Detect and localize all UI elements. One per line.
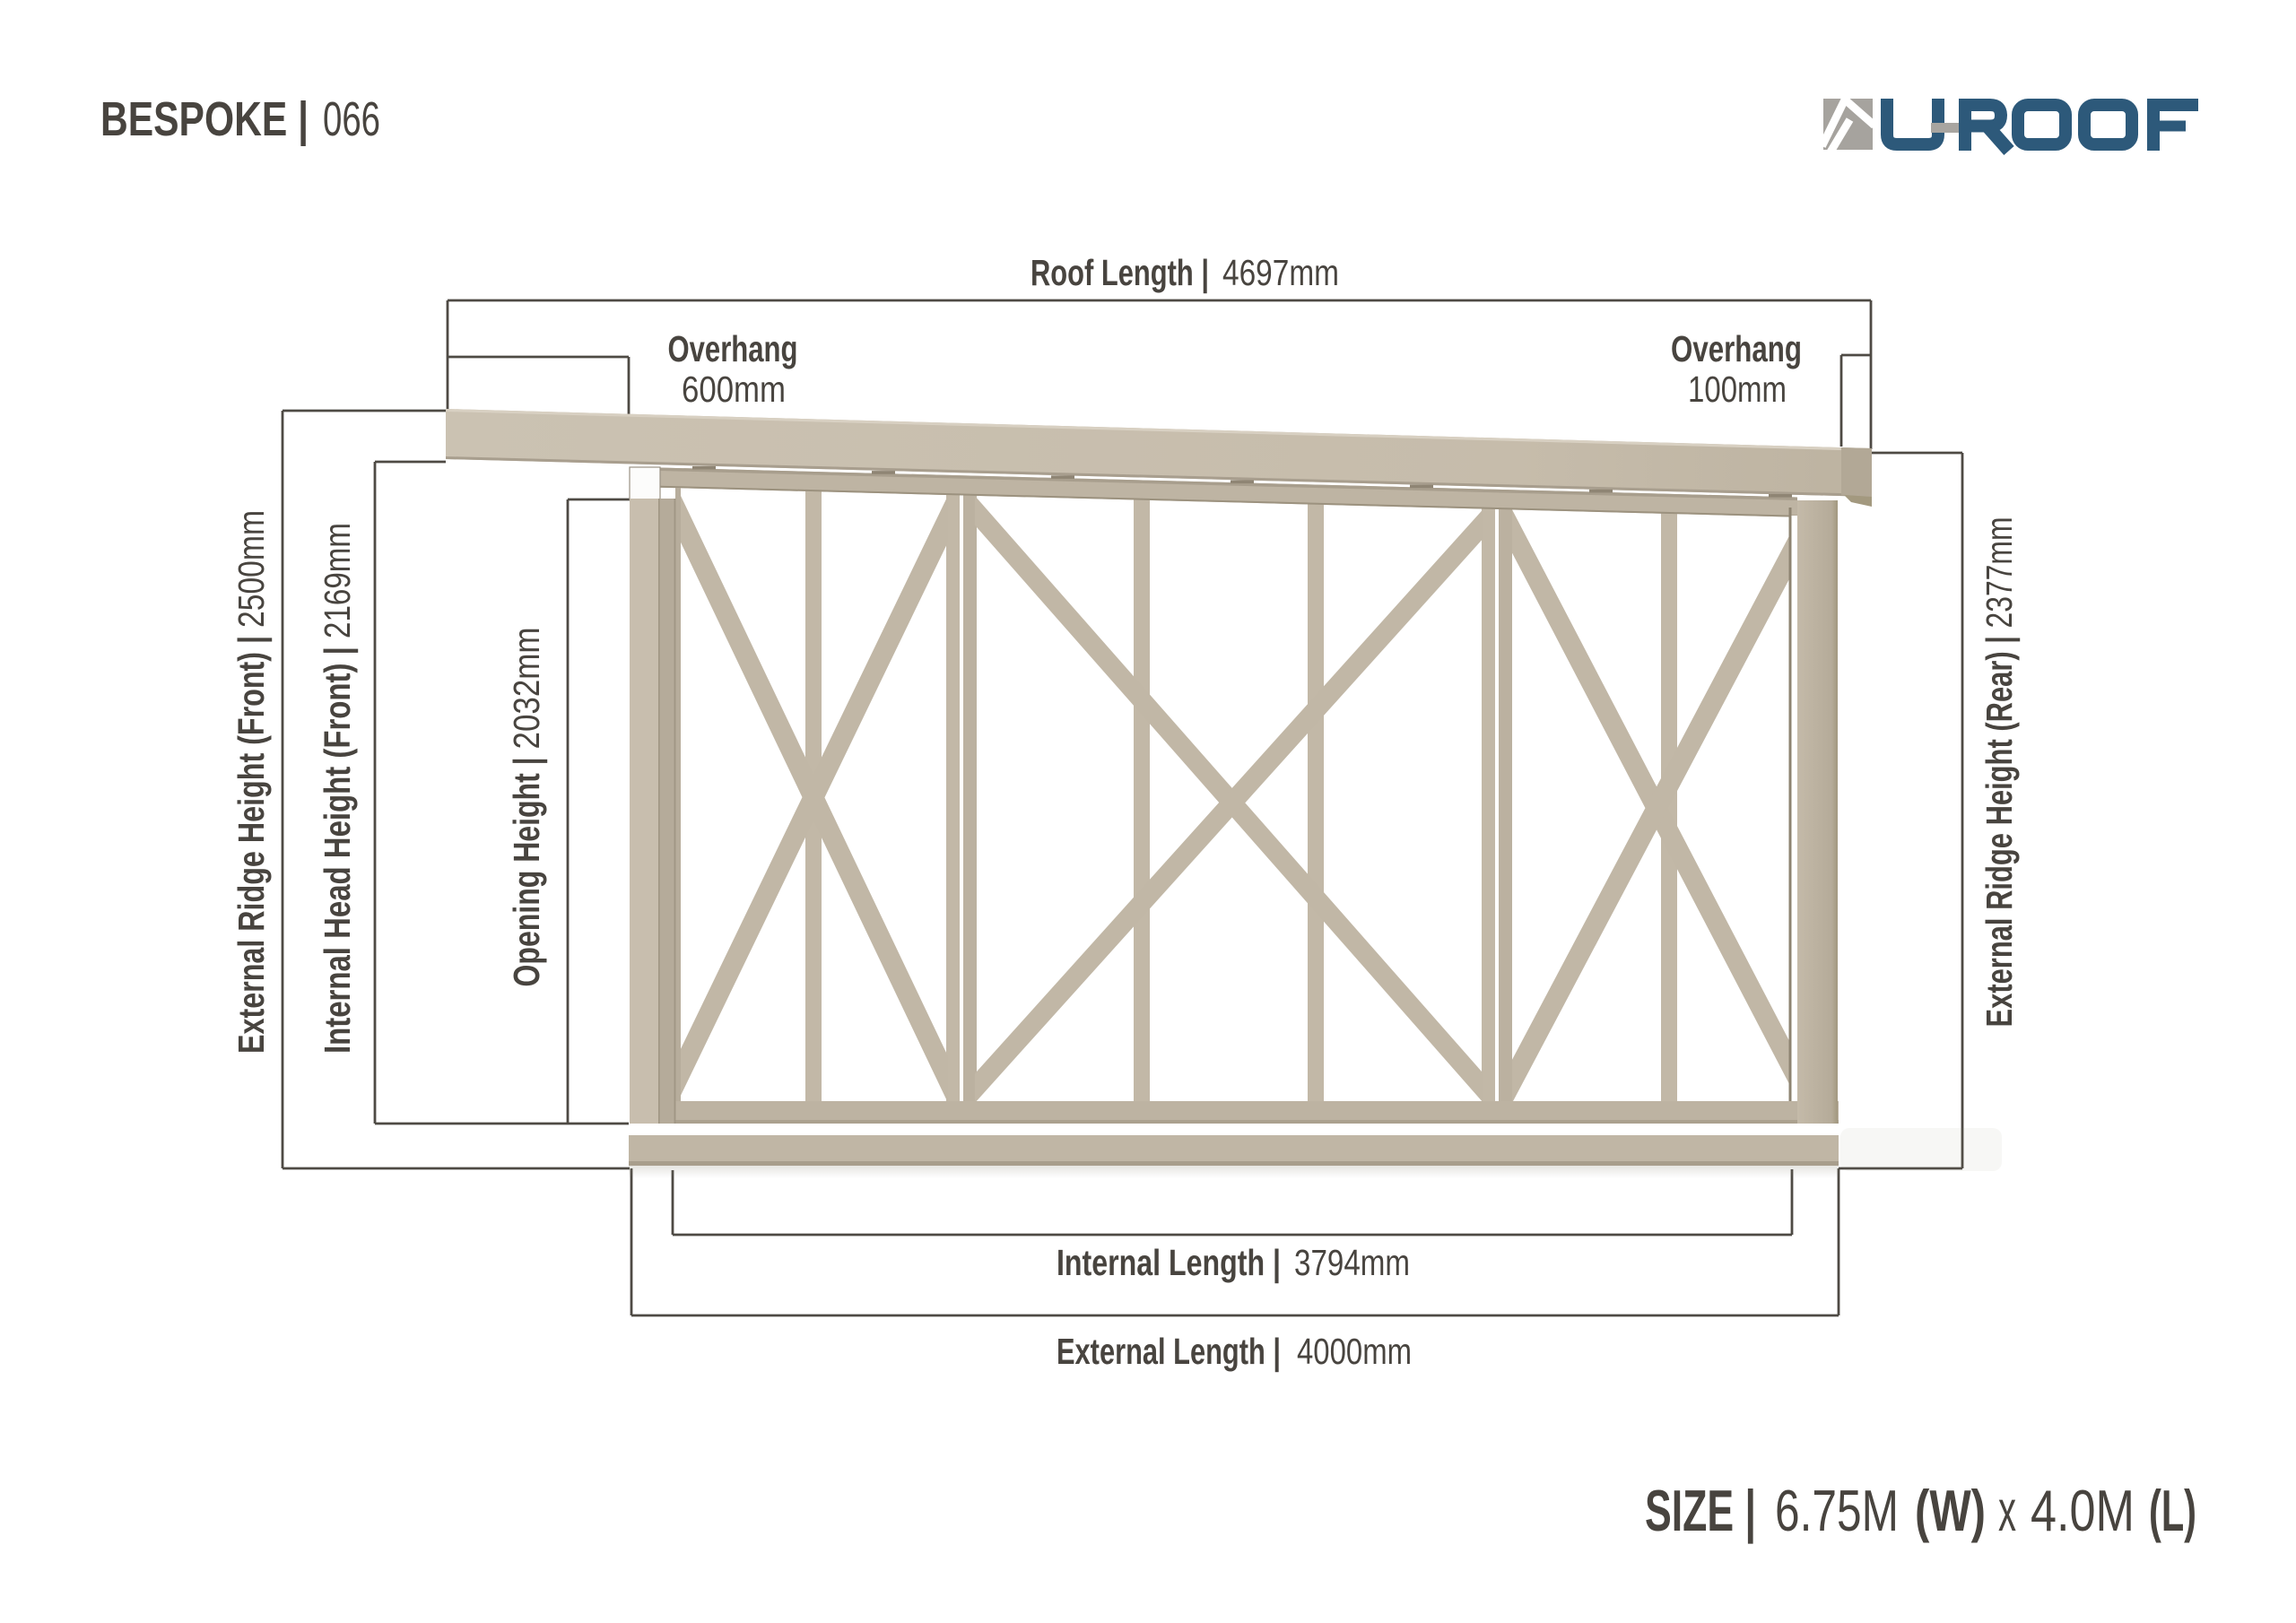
svg-text:BESPOKE |: BESPOKE | <box>100 92 309 147</box>
svg-text:Internal Head Height (Front) |: Internal Head Height (Front) | 2169mm <box>317 523 358 1054</box>
svg-text:(L): (L) <box>2149 1478 2196 1543</box>
svg-text:3794mm: 3794mm <box>1294 1242 1410 1283</box>
svg-text:(W): (W) <box>1915 1478 1986 1543</box>
svg-text:External Length |: External Length | <box>1057 1331 1281 1372</box>
svg-text:Roof Length |: Roof Length | <box>1031 252 1209 293</box>
svg-text:4697mm: 4697mm <box>1222 252 1339 293</box>
svg-text:x: x <box>1998 1478 2016 1543</box>
svg-text:6.75M: 6.75M <box>1775 1478 1899 1543</box>
svg-text:External Ridge Height (Front): External Ridge Height (Front) | 2500mm <box>230 510 272 1054</box>
svg-text:100mm: 100mm <box>1688 369 1787 410</box>
svg-text:Internal Length |: Internal Length | <box>1057 1242 1281 1283</box>
svg-text:4000mm: 4000mm <box>1297 1331 1412 1372</box>
svg-text:External Ridge Height (Rear) |: External Ridge Height (Rear) | 2377mm <box>1979 517 2020 1028</box>
svg-text:Overhang: Overhang <box>668 328 798 369</box>
svg-text:Opening Height | 2032mm: Opening Height | 2032mm <box>506 628 547 987</box>
svg-text:SIZE |: SIZE | <box>1645 1478 1756 1544</box>
svg-text:4.0M: 4.0M <box>2031 1478 2135 1543</box>
svg-text:066: 066 <box>323 92 380 146</box>
svg-text:Overhang: Overhang <box>1671 328 1802 369</box>
svg-text:600mm: 600mm <box>682 369 786 410</box>
